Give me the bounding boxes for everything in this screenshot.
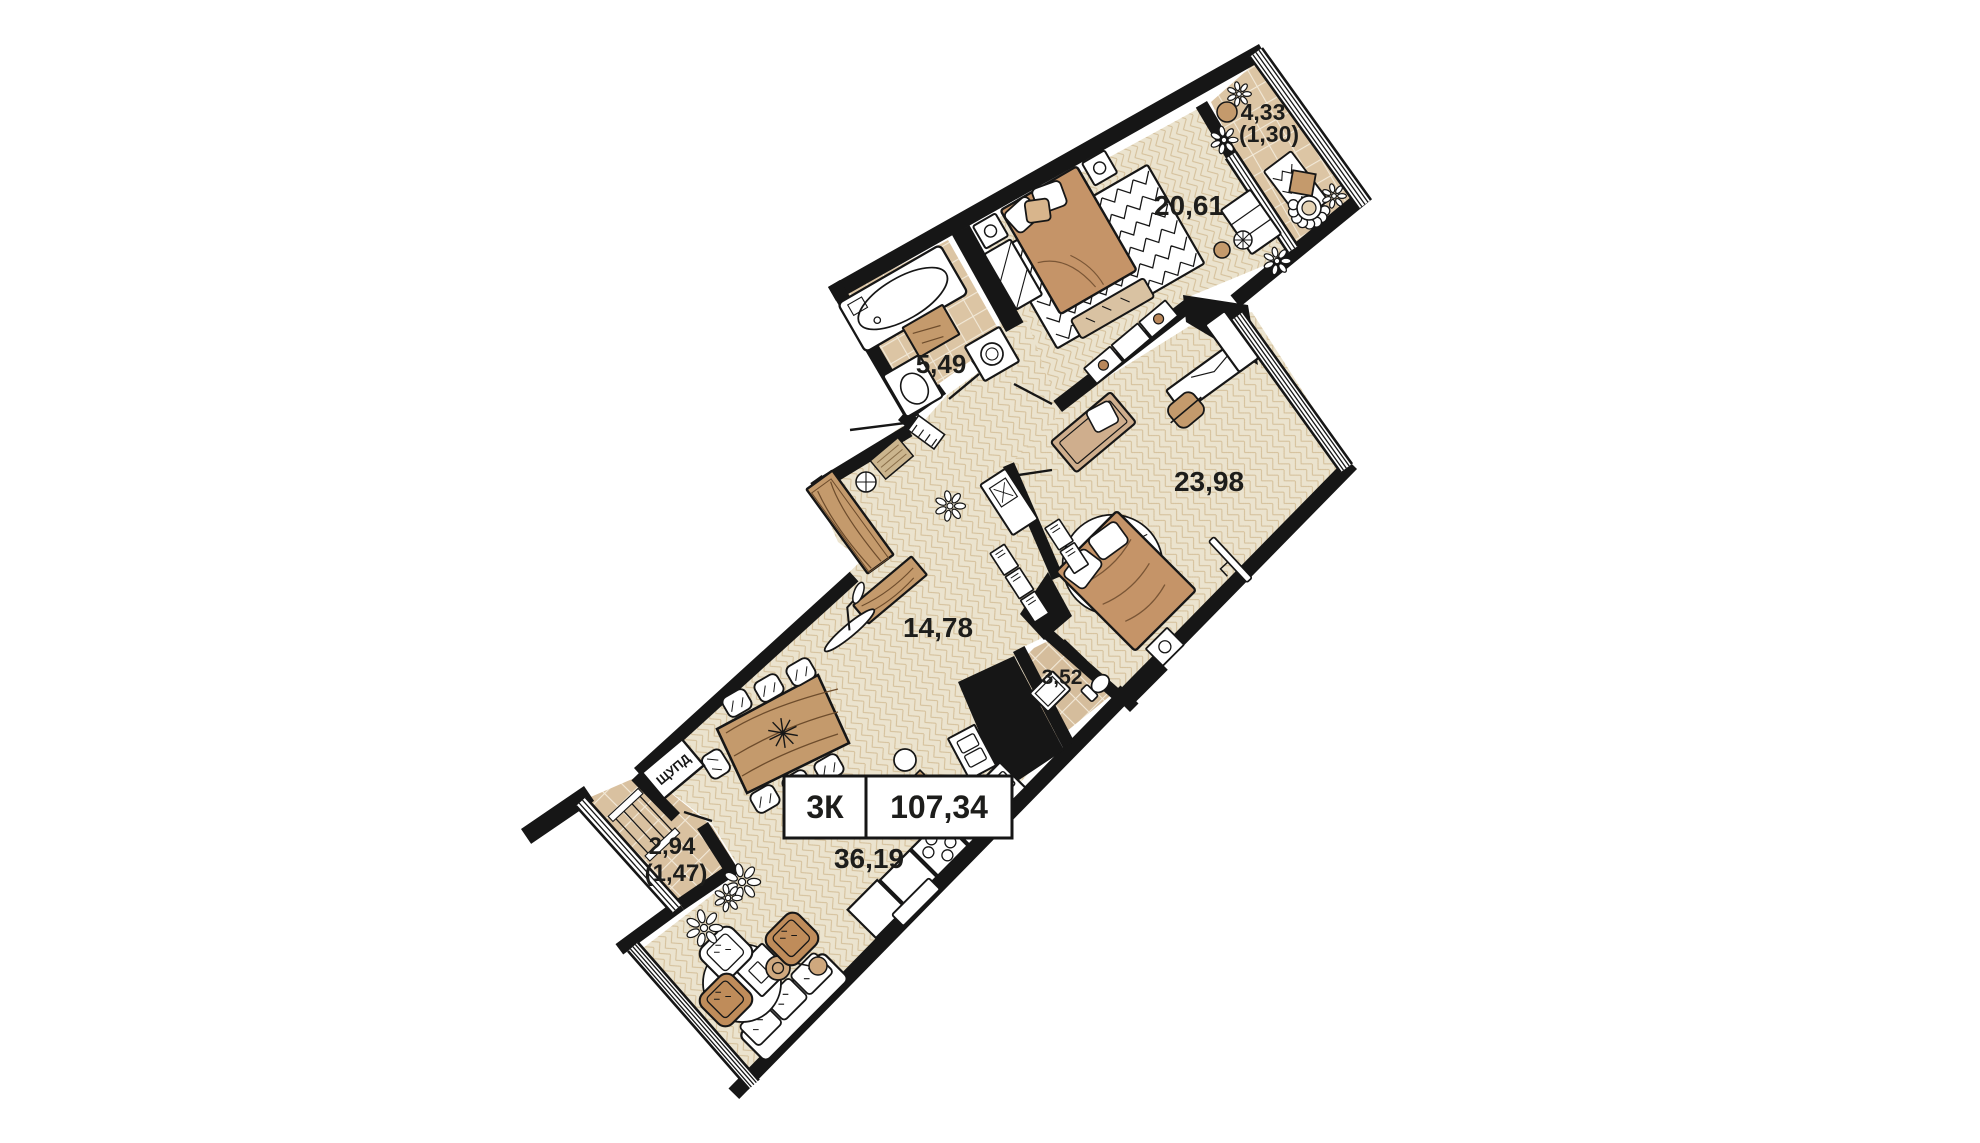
svg-text:3,52: 3,52	[1042, 666, 1083, 689]
svg-text:2,94: 2,94	[649, 833, 696, 860]
svg-text:5,49: 5,49	[916, 349, 967, 379]
svg-text:(1,47): (1,47)	[645, 860, 708, 887]
svg-text:23,98: 23,98	[1174, 466, 1244, 497]
svg-text:14,78: 14,78	[903, 612, 973, 643]
svg-text:(1,30): (1,30)	[1239, 121, 1299, 147]
svg-text:36,19: 36,19	[834, 843, 904, 874]
svg-text:3К: 3К	[806, 789, 844, 825]
svg-text:107,34: 107,34	[890, 789, 988, 825]
svg-text:20,61: 20,61	[1154, 190, 1224, 221]
